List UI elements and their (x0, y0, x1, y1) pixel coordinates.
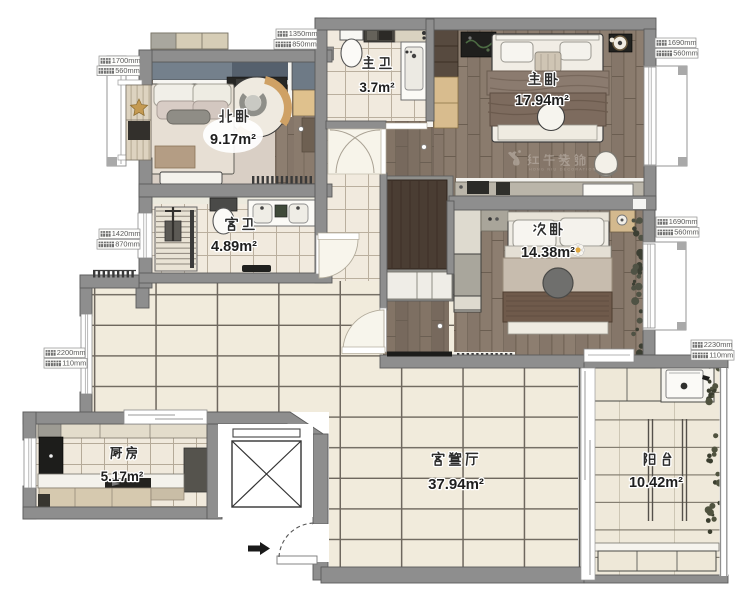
svg-text:850mm: 850mm (292, 40, 317, 49)
svg-text:2200mm: 2200mm (57, 348, 86, 357)
svg-text:110mm: 110mm (709, 351, 733, 360)
svg-text:9.17m²: 9.17m² (210, 132, 256, 148)
svg-text:17.94m²: 17.94m² (515, 93, 569, 109)
svg-text:4.89m²: 4.89m² (211, 239, 257, 255)
svg-text:560mm: 560mm (674, 228, 699, 237)
svg-text:560mm: 560mm (115, 66, 140, 75)
svg-text:1700mm: 1700mm (112, 56, 141, 65)
svg-text:14.38m²: 14.38m² (521, 245, 575, 261)
svg-text:3.7m²: 3.7m² (359, 80, 395, 95)
svg-text:1420mm: 1420mm (112, 229, 141, 238)
svg-text:560mm: 560mm (673, 49, 698, 58)
svg-text:1690mm: 1690mm (668, 38, 697, 47)
svg-text:110mm: 110mm (62, 359, 86, 368)
svg-text:10.42m²: 10.42m² (629, 475, 683, 491)
svg-text:2230mm: 2230mm (704, 340, 733, 349)
svg-text:1350mm: 1350mm (289, 29, 318, 38)
svg-text:5.17m²: 5.17m² (101, 469, 144, 484)
svg-text:1690mm: 1690mm (669, 217, 698, 226)
svg-text:870mm: 870mm (115, 240, 140, 249)
svg-text:37.94m²: 37.94m² (428, 476, 484, 493)
svg-text:HONG NIU DECORATION: HONG NIU DECORATION (529, 168, 597, 172)
